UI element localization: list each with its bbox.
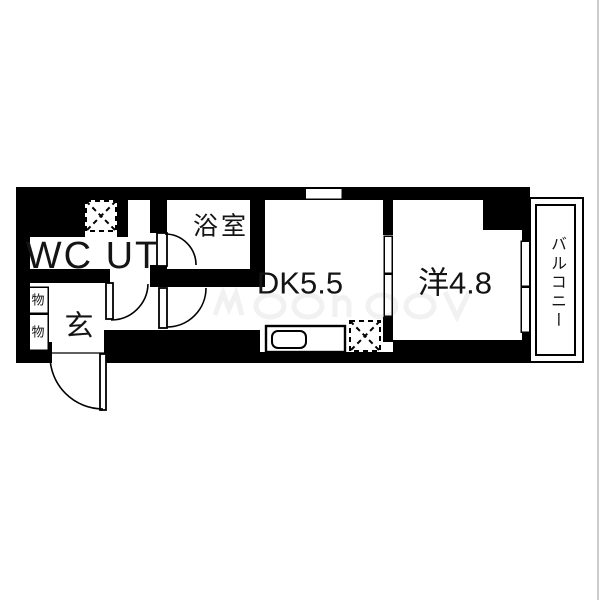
room-label-storage-lower: 物 bbox=[31, 326, 44, 339]
room-label-bathroom: 浴室 bbox=[193, 215, 249, 240]
room-label-entrance: 玄 bbox=[64, 313, 93, 342]
room-label-dining-kitchen: DK5.5 bbox=[257, 268, 343, 299]
image-edge-line bbox=[597, 0, 599, 600]
dk-hall-door bbox=[159, 288, 206, 328]
room-label-western-room: 洋4.8 bbox=[418, 268, 492, 299]
room-label-wc-ut: WC UT bbox=[26, 237, 161, 275]
ut-hall-door bbox=[106, 283, 148, 320]
washing-machine-pad bbox=[86, 201, 116, 231]
room-label-balcony: バルコニー bbox=[548, 236, 564, 331]
balcony-window-upper bbox=[521, 241, 530, 286]
bathroom-door bbox=[157, 233, 196, 266]
entrance-door bbox=[50, 353, 106, 410]
dk-top-window bbox=[305, 188, 342, 199]
kitchen-sink bbox=[272, 331, 306, 348]
balcony-window-lower bbox=[521, 287, 530, 332]
room-label-storage-upper: 物 bbox=[31, 294, 44, 307]
sliding-door-panel-1 bbox=[384, 236, 392, 273]
floorplan-canvas: WC UT 浴室 DK5.5 洋4.8 玄 物 物 バルコニー bbox=[0, 0, 600, 600]
refrigerator-pad bbox=[350, 321, 380, 351]
